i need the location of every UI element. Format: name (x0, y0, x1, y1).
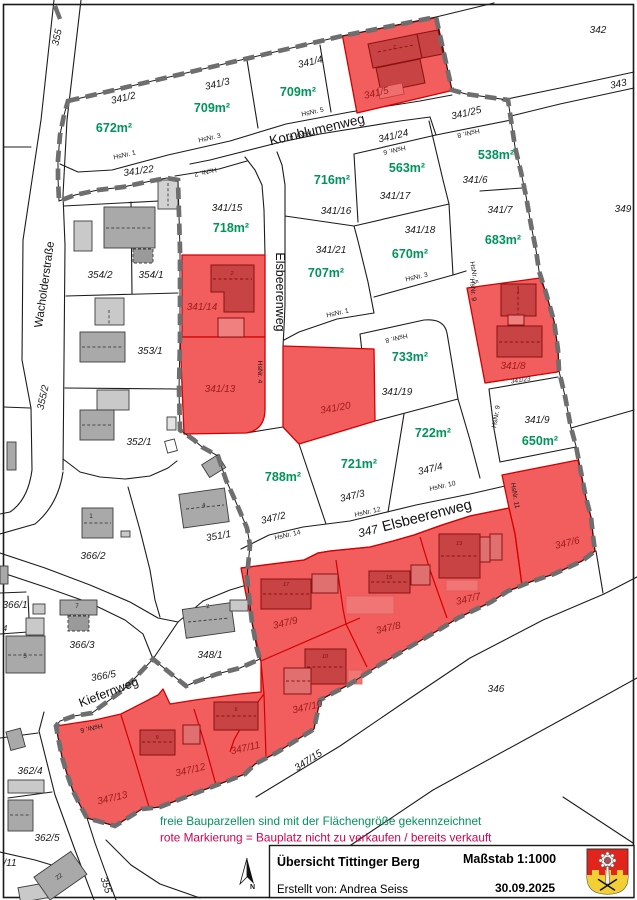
svg-text:341/8: 341/8 (500, 361, 525, 372)
svg-text:341/18: 341/18 (405, 225, 436, 236)
svg-text:362/4: 362/4 (17, 766, 42, 777)
svg-text:354/2: 354/2 (87, 270, 112, 281)
svg-text:718m²: 718m² (213, 221, 249, 235)
svg-text:N: N (250, 884, 255, 891)
svg-text:341/19: 341/19 (382, 387, 413, 398)
svg-text:341/6: 341/6 (462, 175, 487, 186)
svg-text:538m²: 538m² (478, 148, 514, 162)
svg-text:563m²: 563m² (389, 161, 425, 175)
svg-text:348/1: 348/1 (197, 650, 222, 661)
svg-text:341/16: 341/16 (321, 206, 352, 217)
svg-text:/11: /11 (2, 858, 16, 869)
svg-text:366/3: 366/3 (69, 640, 94, 651)
svg-text:709m²: 709m² (194, 101, 230, 115)
svg-text:342: 342 (590, 25, 607, 36)
svg-text:349: 349 (615, 204, 632, 215)
svg-text:Übersicht Tittinger Berg: Übersicht Tittinger Berg (277, 854, 420, 869)
svg-text:672m²: 672m² (96, 121, 132, 135)
svg-text:788m²: 788m² (265, 470, 301, 484)
svg-text:341/15: 341/15 (212, 203, 243, 214)
svg-text:716m²: 716m² (314, 173, 350, 187)
svg-text:346: 346 (488, 684, 505, 695)
svg-text:341/14: 341/14 (187, 302, 218, 313)
svg-text:721m²: 721m² (341, 457, 377, 471)
svg-text:733m²: 733m² (392, 350, 428, 364)
svg-text:freie Bauparzellen sind mit de: freie Bauparzellen sind mit der Flächeng… (160, 814, 482, 828)
svg-text:2: 2 (229, 271, 233, 277)
svg-text:341/17: 341/17 (380, 191, 411, 202)
svg-text:10: 10 (322, 654, 329, 660)
svg-text:670m²: 670m² (392, 247, 428, 261)
svg-text:341/21: 341/21 (316, 245, 347, 256)
svg-text:HsNr. 4: HsNr. 4 (256, 361, 263, 384)
svg-text:17: 17 (283, 582, 290, 588)
svg-text:366/2: 366/2 (80, 551, 105, 562)
svg-text:341/9: 341/9 (524, 415, 549, 426)
svg-text:30.09.2025: 30.09.2025 (495, 881, 555, 895)
svg-text:Erstellt von: Andrea Seiss: Erstellt von: Andrea Seiss (277, 884, 408, 896)
svg-text:366/1: 366/1 (2, 600, 27, 611)
svg-text:1: 1 (516, 289, 519, 295)
svg-text:13: 13 (456, 541, 463, 547)
svg-text:683m²: 683m² (485, 233, 521, 247)
svg-text:rote Markierung = Bauplatz nic: rote Markierung = Bauplatz nicht zu verk… (160, 831, 492, 845)
svg-text:4: 4 (3, 624, 8, 633)
svg-text:707m²: 707m² (308, 266, 344, 280)
svg-text:709m²: 709m² (280, 85, 316, 99)
svg-text:354/1: 354/1 (138, 270, 163, 281)
svg-text:Elsbeerenweg: Elsbeerenweg (273, 252, 287, 331)
svg-text:341/7: 341/7 (487, 205, 512, 216)
svg-text:15: 15 (386, 575, 393, 581)
svg-text:353/1: 353/1 (137, 346, 162, 357)
svg-text:9: 9 (155, 735, 158, 741)
svg-text:362/5: 362/5 (34, 833, 59, 844)
svg-text:650m²: 650m² (522, 434, 558, 448)
svg-text:352/1: 352/1 (126, 437, 151, 448)
svg-text:722m²: 722m² (415, 426, 451, 440)
svg-text:Maßstab 1:1000: Maßstab 1:1000 (463, 852, 556, 866)
svg-text:341/13: 341/13 (205, 384, 236, 395)
